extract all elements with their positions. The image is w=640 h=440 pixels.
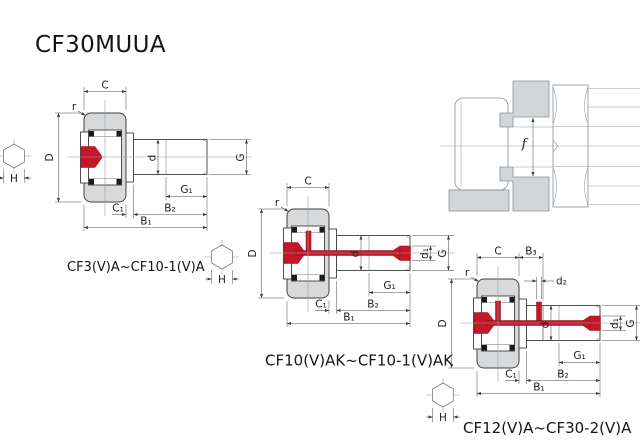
diagram-cf12a: C B₃ d₂ r D d d₁ G G₁ C₁ B₂ B₁ CF12(V)A~… (437, 246, 640, 438)
dim-label-D: D (44, 153, 56, 161)
dim-label-C1: C₁ (505, 369, 517, 381)
drawing-page: CF30MUUA f (0, 0, 640, 440)
dim-label-G: G (437, 249, 449, 257)
dim-label-C1: C₁ (112, 203, 124, 215)
dim-label-B3: B₃ (525, 246, 536, 258)
dim-label-G: G (625, 319, 637, 327)
caption-cf3a: CF3(V)A~CF10-1(V)A (67, 260, 205, 275)
dim-label-B1: B₁ (533, 382, 544, 394)
hex-socket-icon-3: H (426, 378, 460, 424)
dim-label-G: G (235, 153, 247, 161)
dim-label-d2: d₂ (556, 276, 567, 288)
dim-label-B2: B₂ (164, 203, 175, 215)
dim-label-B1: B₁ (140, 216, 151, 228)
dim-label-G1: G₁ (573, 350, 585, 362)
mounting-illustration: f (440, 81, 640, 211)
side-plate (126, 133, 134, 182)
grease-hole-d2 (537, 302, 542, 321)
dim-label-D: D (437, 319, 449, 327)
dim-label-B2: B₂ (557, 369, 568, 381)
dim-label-d: d (350, 251, 362, 258)
dim-label-d: d (147, 155, 159, 162)
page-title: CF30MUUA (35, 32, 166, 58)
dim-label-r: r (275, 197, 280, 209)
dim-label-G1: G₁ (180, 184, 192, 196)
dim-label-C1: C₁ (315, 299, 327, 311)
dim-label-r: r (72, 101, 77, 113)
f-label: f (521, 137, 529, 152)
dim-label-D: D (247, 249, 259, 257)
hex-h-label: H (439, 412, 447, 424)
dim-label-r: r (465, 267, 470, 279)
track-block (449, 190, 509, 211)
dim-label-d1: d₁ (609, 318, 621, 329)
hex-socket-icon-2: H (205, 240, 239, 286)
dim-label-B2: B₂ (367, 299, 378, 311)
dim-label-G1: G₁ (383, 280, 395, 292)
dim-label-d1: d₁ (419, 248, 431, 259)
dim-label-C: C (494, 246, 501, 258)
dim-label-d: d (540, 322, 552, 329)
caption-cf12a: CF12(V)A~CF30-2(V)A (463, 419, 632, 437)
housing-plate-upper (500, 81, 549, 127)
diagram-cf10ak: C r D d d₁ G G₁ C₁ B₂ B₁ CF10(V)AK~CF10-… (247, 176, 455, 370)
technical-drawing-canvas: CF30MUUA f (0, 0, 640, 440)
caption-cf10ak: CF10(V)AK~CF10-1(V)AK (265, 352, 454, 370)
dim-label-B1: B₁ (343, 312, 354, 324)
hex-h-label: H (218, 274, 226, 286)
hex-socket-icon-1: H (0, 139, 31, 185)
hex-h-label: H (10, 173, 18, 185)
dim-label-C: C (101, 80, 108, 92)
grease-hole-vertical (306, 231, 311, 253)
dim-label-C: C (304, 176, 311, 188)
